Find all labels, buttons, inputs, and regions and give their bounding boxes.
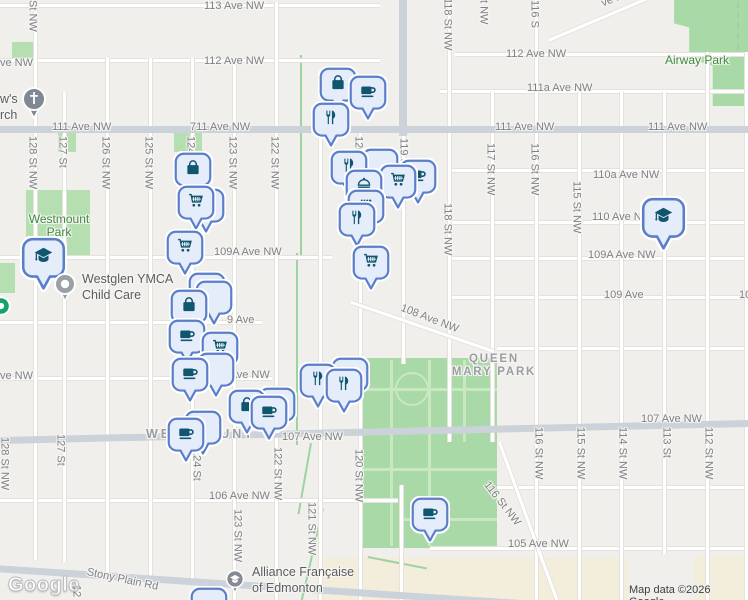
street-label-vertical: 128 St NW [0,437,10,490]
road [705,52,710,600]
street-label: 109A Ave NW [588,250,656,262]
road [662,92,667,554]
street-label-vertical: 122 St NW [271,447,283,500]
street-label: 112 Ave NW [204,56,264,68]
street-label-vertical: 120 St NW [352,449,364,502]
trail-path [300,55,302,255]
street-label: ve NW [0,371,33,383]
trail-path [737,2,739,50]
map-canvas[interactable]: 113 Ave NW112 Ave NW112 Ave NW111a Ave N… [0,0,748,600]
park-path [363,468,497,471]
poi-label[interactable]: Alliance Française of Edmonton [252,565,354,596]
street-label: 113 Ave NW [204,1,264,13]
street-label-vertical: 127 St [54,434,66,466]
street-label-vertical: 121 St NW [305,502,317,555]
road [274,2,279,600]
map-attribution: Map data ©2026 Google [629,584,748,600]
street-label: 111 Ave NW [52,122,111,134]
street-label-vertical: 116 S [528,0,540,28]
street-label: 105 Ave NW [508,539,569,551]
road [399,485,404,600]
district-label: QUEEN MARY PARK [434,353,554,379]
street-label-vertical: 123 St NW [231,509,243,562]
road [548,0,679,43]
street-label: 106 Ave NW [209,491,270,503]
street-label: 711 Ave NW [190,122,250,134]
street-label-vertical: 127 St [56,136,68,168]
road [0,3,380,8]
road [577,92,582,600]
street-label-vertical: 125 St NW [142,136,154,189]
street-label-vertical: 117 St NW [484,143,496,195]
road [744,52,748,600]
dot-icon [61,280,69,288]
road [430,546,748,551]
left-edge-green [0,263,15,293]
road [440,89,748,94]
street-label-vertical: 122 St NW [268,136,280,189]
google-logo[interactable]: Google [8,574,80,597]
road [350,300,493,354]
street-label-vertical: 116 St NW [532,427,544,479]
street-label: 10 [739,290,748,302]
street-label-vertical: 118 St NW [441,203,453,255]
street-label: 107 Ave NW [282,432,343,444]
street-label-vertical: 116 St NW [528,143,540,195]
park-label: Airway Park [665,54,729,67]
street-label: 109 Ave [604,290,644,302]
poi-label[interactable]: w's rch [0,92,18,123]
street-label: 112 Ave NW [506,49,566,61]
street-label: 111a Ave NW [527,83,592,95]
poi-label[interactable]: Westglen YMCA Child Care [82,272,173,303]
road [0,498,398,503]
street-label: ve NW [0,58,33,70]
street-label-vertical: 112 St NW [702,427,714,479]
street-label-vertical: 126 St NW [99,136,111,189]
street-label: 111 Ave NW [648,122,707,134]
street-label: 107 Ave NW [641,414,702,426]
street-label-vertical: St NW [26,0,38,32]
street-label-vertical: 114 St NW [616,427,628,479]
street-label-vertical: 113 St [660,427,672,458]
street-label-vertical: 118 St NW [441,0,453,50]
street-label: 110a Ave NW [593,170,659,182]
street-label-vertical: 128 St NW [26,136,38,189]
street-label-vertical: 123 St NW [226,136,238,189]
park-path-circle [395,372,429,406]
road-major [0,126,748,133]
street-label-vertical: t NW [477,0,489,24]
street-label: 109A Ave NW [214,247,282,259]
road-major [399,0,407,136]
street-label-vertical: 115 St NW [570,181,582,233]
street-label: 111 Ave NW [495,122,554,134]
park-path [363,388,497,391]
street-label-vertical: 115 St NW [574,427,586,479]
